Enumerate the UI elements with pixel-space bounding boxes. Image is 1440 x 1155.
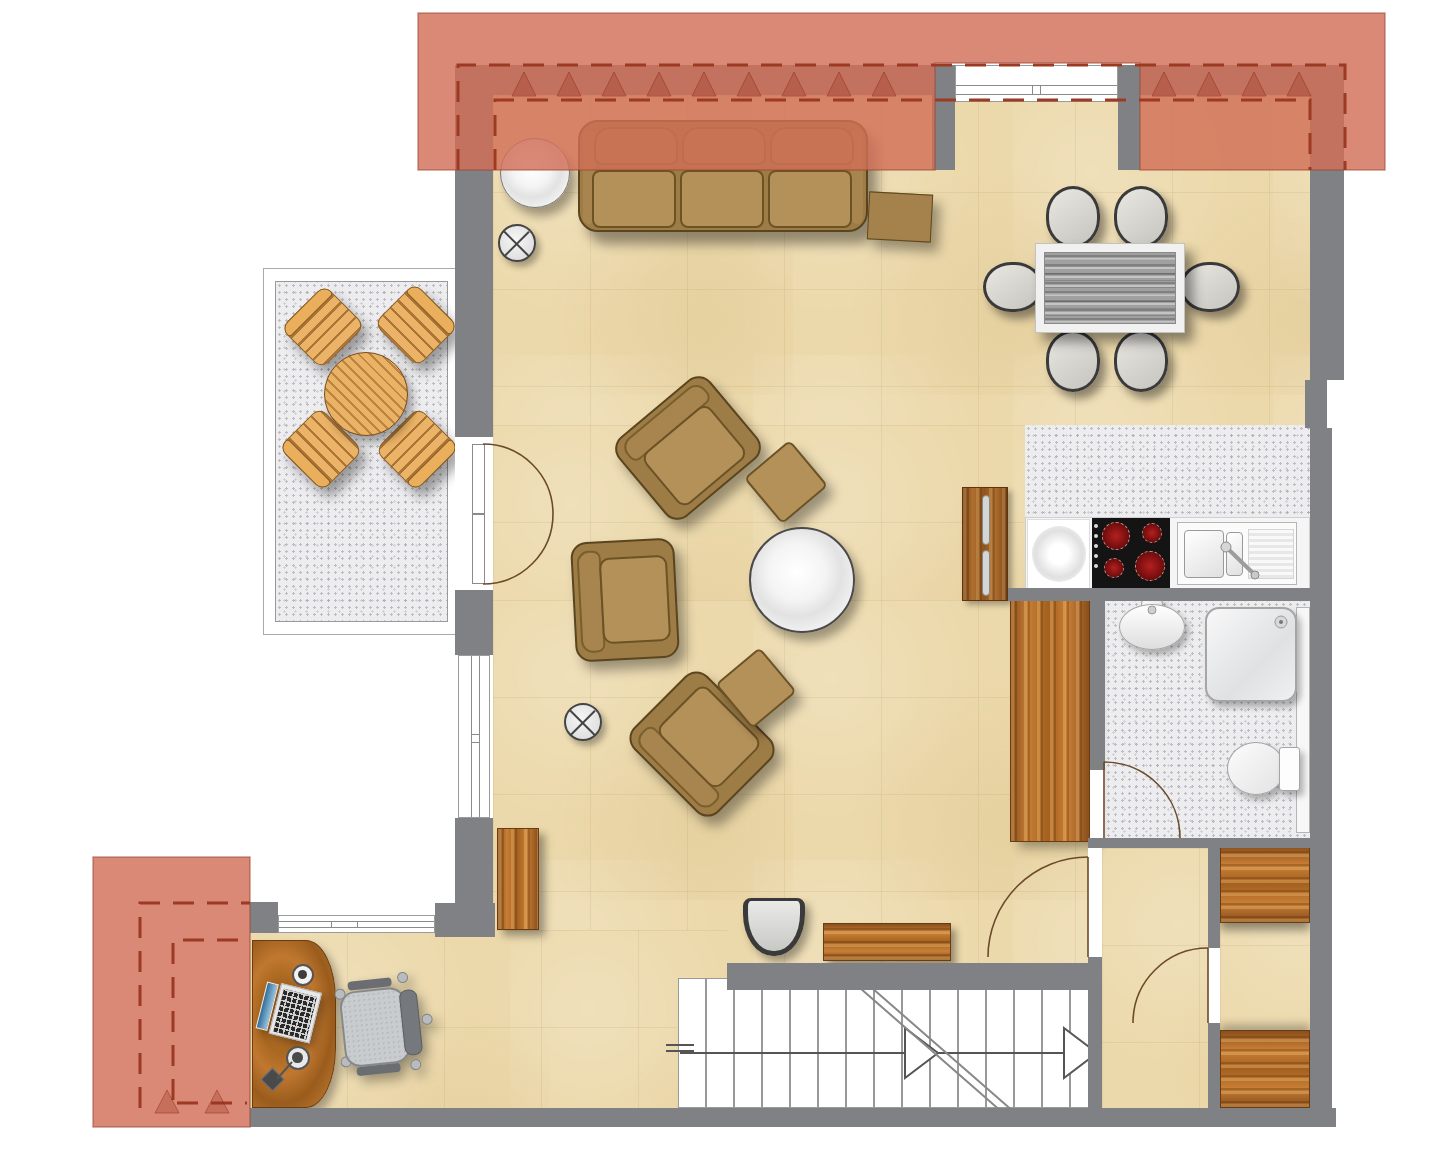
wall-east-lower <box>1310 428 1332 1127</box>
ottoman-1 <box>744 440 829 525</box>
wall-bath-south <box>1088 838 1310 848</box>
balcony-table <box>324 352 408 436</box>
wall-south <box>250 1108 1336 1127</box>
chair-caster <box>410 1059 422 1071</box>
burner <box>1104 558 1124 578</box>
sink-half-basin <box>1226 532 1243 576</box>
window-study <box>278 915 435 933</box>
bathroom-door-opening <box>1090 770 1105 838</box>
wardrobe-cabinet-bottom <box>1220 1030 1310 1108</box>
bathroom-wall-panel <box>1296 607 1310 833</box>
wall-kitchen-bath <box>1008 588 1310 601</box>
dining-chair <box>983 262 1043 312</box>
lowboard <box>497 828 539 930</box>
sofa-seat-cushion <box>592 170 676 228</box>
sofa-seat-cushion <box>768 170 852 228</box>
wall-landing-east-lower <box>1208 1023 1220 1108</box>
wall-landing-west <box>1088 957 1102 1108</box>
dining-chair <box>1114 330 1168 392</box>
dining-chair <box>1114 186 1168 248</box>
floor-plan <box>0 0 1440 1155</box>
office-chair <box>331 967 442 1083</box>
counter-module-circle <box>1032 526 1086 582</box>
laptop <box>254 978 327 1051</box>
kitchen-sink <box>1177 522 1297 585</box>
wall-east-step <box>1305 380 1327 428</box>
toilet-bowl <box>1227 742 1285 795</box>
wardrobe-cabinet-top <box>1220 845 1310 923</box>
floor-stair-landing <box>1102 848 1208 1108</box>
dining-chair <box>1180 262 1240 312</box>
wall-north-pier-left <box>932 65 955 170</box>
burner <box>1102 522 1130 550</box>
coffee-table <box>749 527 855 633</box>
counter-module <box>1027 519 1090 590</box>
shower <box>1205 607 1297 702</box>
square-side-table <box>867 191 933 242</box>
chair-caster <box>397 971 409 983</box>
dining-table <box>1035 243 1185 333</box>
sink-drainer <box>1248 529 1294 579</box>
dining-chair <box>1046 186 1100 248</box>
cross-base-table-2 <box>564 703 602 741</box>
cabinet-handle <box>982 495 990 545</box>
mug <box>292 964 314 986</box>
armchair-2 <box>570 537 680 662</box>
dining-chair <box>1046 330 1100 392</box>
pedestal-sink <box>1119 604 1185 650</box>
wall-bath-west <box>1090 598 1105 770</box>
storage-door-opening <box>1208 948 1220 1023</box>
window-west <box>458 655 490 818</box>
wall-west-corner <box>435 903 495 937</box>
staircase <box>678 978 1100 1108</box>
french-door-leaf <box>472 514 485 584</box>
ottoman-2 <box>715 647 797 729</box>
burner <box>1142 523 1162 543</box>
dining-table-top <box>1044 252 1176 324</box>
burner <box>1135 551 1165 581</box>
wall-north-pier-right <box>1118 65 1140 170</box>
wall-landing-east-upper <box>1208 848 1220 948</box>
window-north <box>955 65 1118 102</box>
french-door-leaf <box>472 444 485 514</box>
tall-cabinet <box>1010 600 1090 842</box>
sink-basin <box>1184 530 1224 578</box>
kitchen-cabinet <box>962 487 1008 601</box>
cabinet-handle <box>982 550 990 596</box>
roof-overhang-southwest <box>93 857 250 1127</box>
sideboard <box>823 923 951 961</box>
toilet-tank <box>1279 747 1300 791</box>
hob <box>1092 518 1170 589</box>
cross-base-table-1 <box>498 224 536 262</box>
desk-lamp-base <box>286 1046 310 1070</box>
wall-west-mid <box>455 590 493 655</box>
half-wall-stairs <box>727 963 1097 990</box>
landing-door-opening <box>1088 848 1102 957</box>
chair-caster <box>421 1013 433 1025</box>
sofa-seat-cushion <box>680 170 764 228</box>
wall-study-stub <box>250 902 278 933</box>
